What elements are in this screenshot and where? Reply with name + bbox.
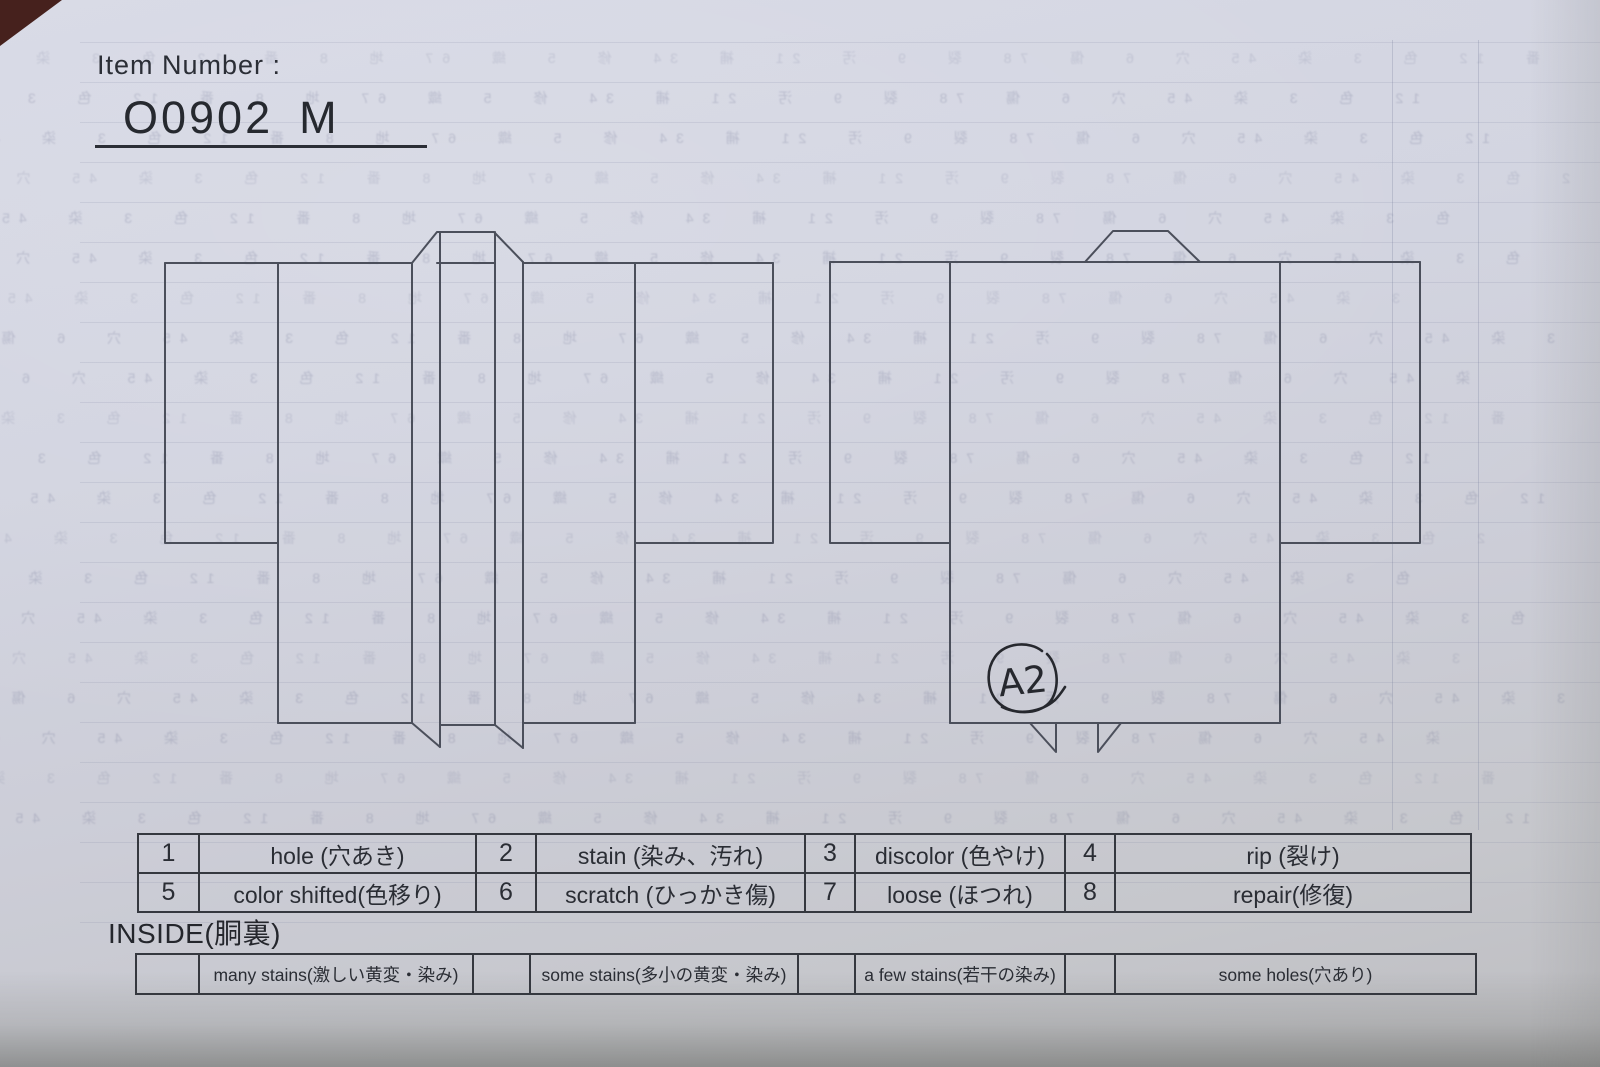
front-left-sleeve — [165, 263, 278, 723]
defect-code: 1 — [139, 835, 198, 872]
defect-label: discolor (色やけ) — [854, 835, 1064, 872]
inside-row: many stains(激しい黄変・染み) some stains(多小の黄変・… — [137, 955, 1475, 993]
defect-label: repair(修復) — [1114, 874, 1470, 911]
back-right-sleeve — [1280, 262, 1420, 723]
front-collar-cap — [412, 232, 523, 263]
scanned-inspection-sheet: 番 12 色 3 染 45 穴 6 傷 78 裂 9 汚 21 補 34 修 5… — [0, 0, 1600, 1067]
inside-option-label: some stains(多小の黄変・染み) — [529, 955, 797, 993]
kimono-front-outline — [165, 232, 773, 748]
inside-mark-cell — [797, 955, 854, 993]
defect-code: 5 — [139, 874, 198, 911]
inside-condition-table: many stains(激しい黄変・染み) some stains(多小の黄変・… — [135, 953, 1477, 995]
defect-code: 8 — [1064, 874, 1114, 911]
defect-code: 4 — [1064, 835, 1114, 872]
kimono-back-outline — [830, 231, 1420, 752]
inside-option-label: a few stains(若干の染み) — [854, 955, 1064, 993]
back-collar-notch — [1085, 231, 1200, 262]
handwritten-annotation: A2 — [989, 644, 1065, 712]
front-collar-bands — [412, 232, 523, 748]
defect-label: loose (ほつれ) — [854, 874, 1064, 911]
inside-option-label: many stains(激しい黄変・染み) — [198, 955, 472, 993]
defect-code: 2 — [475, 835, 535, 872]
inside-mark-cell — [1064, 955, 1114, 993]
defect-code: 6 — [475, 874, 535, 911]
front-right-sleeve — [635, 263, 773, 723]
defect-label: stain (染み、汚れ) — [535, 835, 804, 872]
legend-row: 1 hole (穴あき) 2 stain (染み、汚れ) 3 discolor … — [139, 835, 1470, 872]
back-hem-tabs — [1030, 723, 1121, 752]
defect-code: 7 — [804, 874, 854, 911]
inside-section-title: INSIDE(胴裏) — [108, 912, 281, 952]
annotation-text: A2 — [996, 657, 1049, 705]
defect-label: hole (穴あき) — [198, 835, 475, 872]
front-okumi-flaps — [412, 723, 523, 748]
inside-mark-cell — [472, 955, 529, 993]
inside-mark-cell — [137, 955, 198, 993]
defect-legend-table: 1 hole (穴あき) 2 stain (染み、汚れ) 3 discolor … — [137, 833, 1472, 913]
defect-label: scratch (ひっかき傷) — [535, 874, 804, 911]
back-left-sleeve — [830, 262, 950, 723]
defect-label: rip (裂け) — [1114, 835, 1470, 872]
inside-option-label: some holes(穴あり) — [1114, 955, 1475, 993]
defect-code: 3 — [804, 835, 854, 872]
defect-label: color shifted(色移り) — [198, 874, 475, 911]
legend-row: 5 color shifted(色移り) 6 scratch (ひっかき傷) 7… — [139, 872, 1470, 911]
